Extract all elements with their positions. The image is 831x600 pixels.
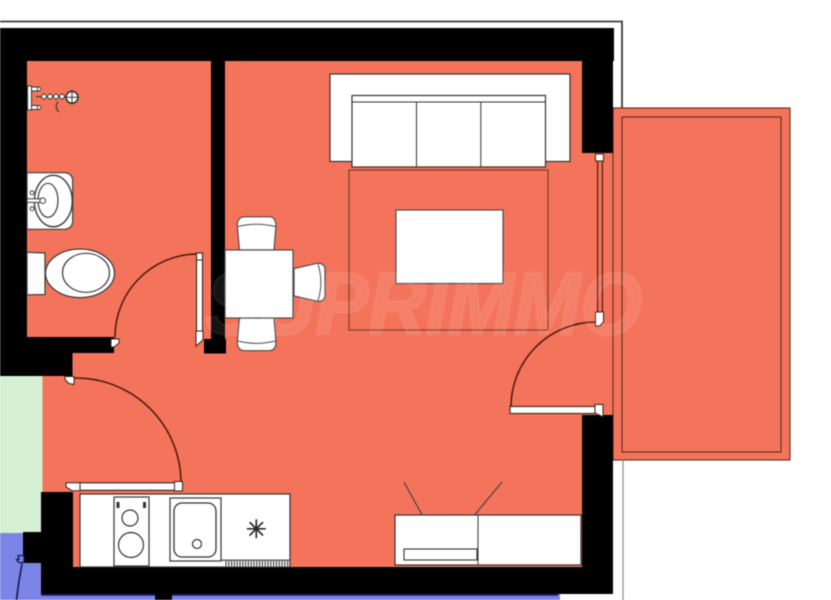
svg-text:SUPRIMMO: SUPRIMMO <box>205 254 642 353</box>
